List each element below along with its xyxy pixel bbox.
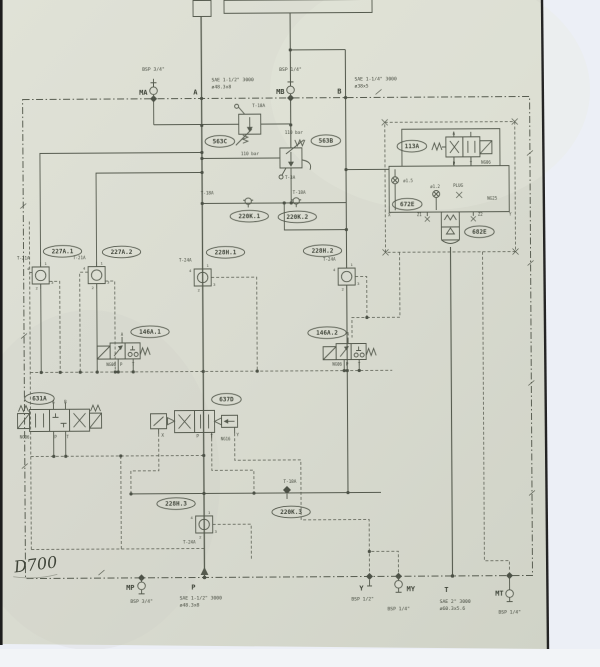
port-Y-thread: BSP 1/2" <box>351 596 374 602</box>
port-MB-circle <box>287 86 295 94</box>
label-p-33: P <box>196 433 199 439</box>
photo-left-edge <box>0 0 3 645</box>
port-MA-circle <box>150 87 158 95</box>
label-t-18a-0: T-18A <box>252 103 265 109</box>
port-MB-thread: BSP 1/4" <box>279 67 302 73</box>
component-tag-220K.2: 220K.2 <box>286 214 308 221</box>
component-tag-146A.1: 146A.1 <box>139 329 161 336</box>
port-B-spec-1: ø38x5 <box>354 83 368 89</box>
port-A-spec-1: ø48.3x8 <box>211 84 231 90</box>
check-valve-4-label: T-24A <box>183 540 196 545</box>
port-MY-circle <box>395 580 403 588</box>
port-B-spec-0: SAE 1-1/4" 3000 <box>354 76 397 82</box>
component-tag-563B: 563B <box>319 138 334 145</box>
check-valve-4-port2: 2 <box>199 534 201 539</box>
check-valve-0-port2: 2 <box>36 285 38 290</box>
port-MY-label: MY <box>407 585 416 593</box>
check-valve-2-label: T-24A <box>179 258 192 263</box>
label-ng06-23: NG06 <box>332 362 342 367</box>
label-t-18a-4: T-18A <box>201 190 214 196</box>
port-MY-thread: BSP 1/4" <box>387 606 410 612</box>
component-tag-228H.1: 228H.1 <box>215 249 237 256</box>
port-T-spec-1: ø60.3x5.6 <box>440 606 466 612</box>
component-tag-228H.2: 228H.2 <box>312 248 334 255</box>
port-MT-circle <box>506 590 514 598</box>
label-ng06-27: NG06 <box>20 435 30 440</box>
component-tag-220K.3: 220K.3 <box>280 509 302 516</box>
check-valve-3-label: T-24A <box>323 257 336 262</box>
check-valve-2-port3: 3 <box>213 282 215 287</box>
label--1-5-8: ø1.5 <box>403 178 413 183</box>
component-tag-563C: 563C <box>213 138 228 145</box>
port-A-spec-0: SAE 1-1/2" 3000 <box>211 77 254 83</box>
component-tag-631A: 631A <box>32 396 47 403</box>
port-MT-label: MT <box>495 590 503 598</box>
check-valve-1-port3: 3 <box>107 280 109 285</box>
component-tag-672E: 672E <box>400 201 415 208</box>
label-z1-11: Z1 <box>417 212 422 217</box>
component-tag-227A.1: 227A.1 <box>52 248 74 255</box>
label-ng16-35: NG16 <box>221 436 231 441</box>
port-P-spec-0: SAE 1-1/2" 3000 <box>180 595 223 601</box>
port-MB-label: MB <box>276 88 284 96</box>
component-tag-637D: 637D <box>219 396 234 403</box>
port-P-spec-1: ø48.3x8 <box>180 602 200 608</box>
check-valve-0-label: T-21A <box>17 256 30 261</box>
port-MP-thread: BSP 3/4" <box>130 599 153 605</box>
check-valve-2-port2: 2 <box>198 287 200 292</box>
check-valve-1-label: T-21A <box>73 255 86 260</box>
port-T-label: T <box>444 586 448 594</box>
port-T-spec-0: SAE 2" 3000 <box>440 599 471 605</box>
label-t-18a-5: T-18A <box>293 190 306 196</box>
component-tag-227A.2: 227A.2 <box>111 249 133 256</box>
port-B-label: B <box>337 88 341 96</box>
port-MP-circle <box>138 582 146 590</box>
label-x-32: X <box>161 433 164 439</box>
label-y-36: Y <box>236 432 239 438</box>
port-MA-thread: BSP 3/4" <box>142 67 165 73</box>
label-ng25-10: NG25 <box>487 196 498 201</box>
label-ng06-15: NG06 <box>481 160 491 165</box>
photo-of-hydraulic-schematic: 563C563B220K.1220K.2113A672E682E227A.122… <box>0 0 600 667</box>
component-tag-682E: 682E <box>472 229 487 236</box>
label-z2-12: Z2 <box>478 212 483 217</box>
port-MA-label: MA <box>139 89 148 97</box>
label-t-3a-3: T-3A <box>285 175 296 181</box>
label-t-34: T <box>210 433 213 439</box>
component-tag-113A: 113A <box>405 143 420 150</box>
label-plug-7: PLUG <box>453 183 464 188</box>
port-MP-label: MP <box>126 584 134 592</box>
check-valve-0-port3: 3 <box>51 280 53 285</box>
label-110-bar-2: 110 bar <box>285 130 304 136</box>
label--1-2-9: ø1.2 <box>430 184 440 189</box>
label-110-bar-1: 110 bar <box>241 151 260 157</box>
label-t-18a-6: T-18A <box>283 479 296 485</box>
photo-bottom-band <box>0 649 600 667</box>
component-tag-220K.1: 220K.1 <box>238 213 260 220</box>
port-MT-thread: BSP 1/4" <box>498 610 521 616</box>
check-valve-4-port3: 3 <box>215 529 217 534</box>
check-valve-3-port2: 2 <box>342 287 344 292</box>
port-P-label: P <box>191 584 195 592</box>
label-ng06-19: NG06 <box>106 362 116 367</box>
component-tag-146A.2: 146A.2 <box>316 330 338 337</box>
check-valve-1-port2: 2 <box>92 285 94 290</box>
component-tag-228H.3: 228H.3 <box>165 501 187 508</box>
check-valve-3-port3: 3 <box>357 281 359 286</box>
